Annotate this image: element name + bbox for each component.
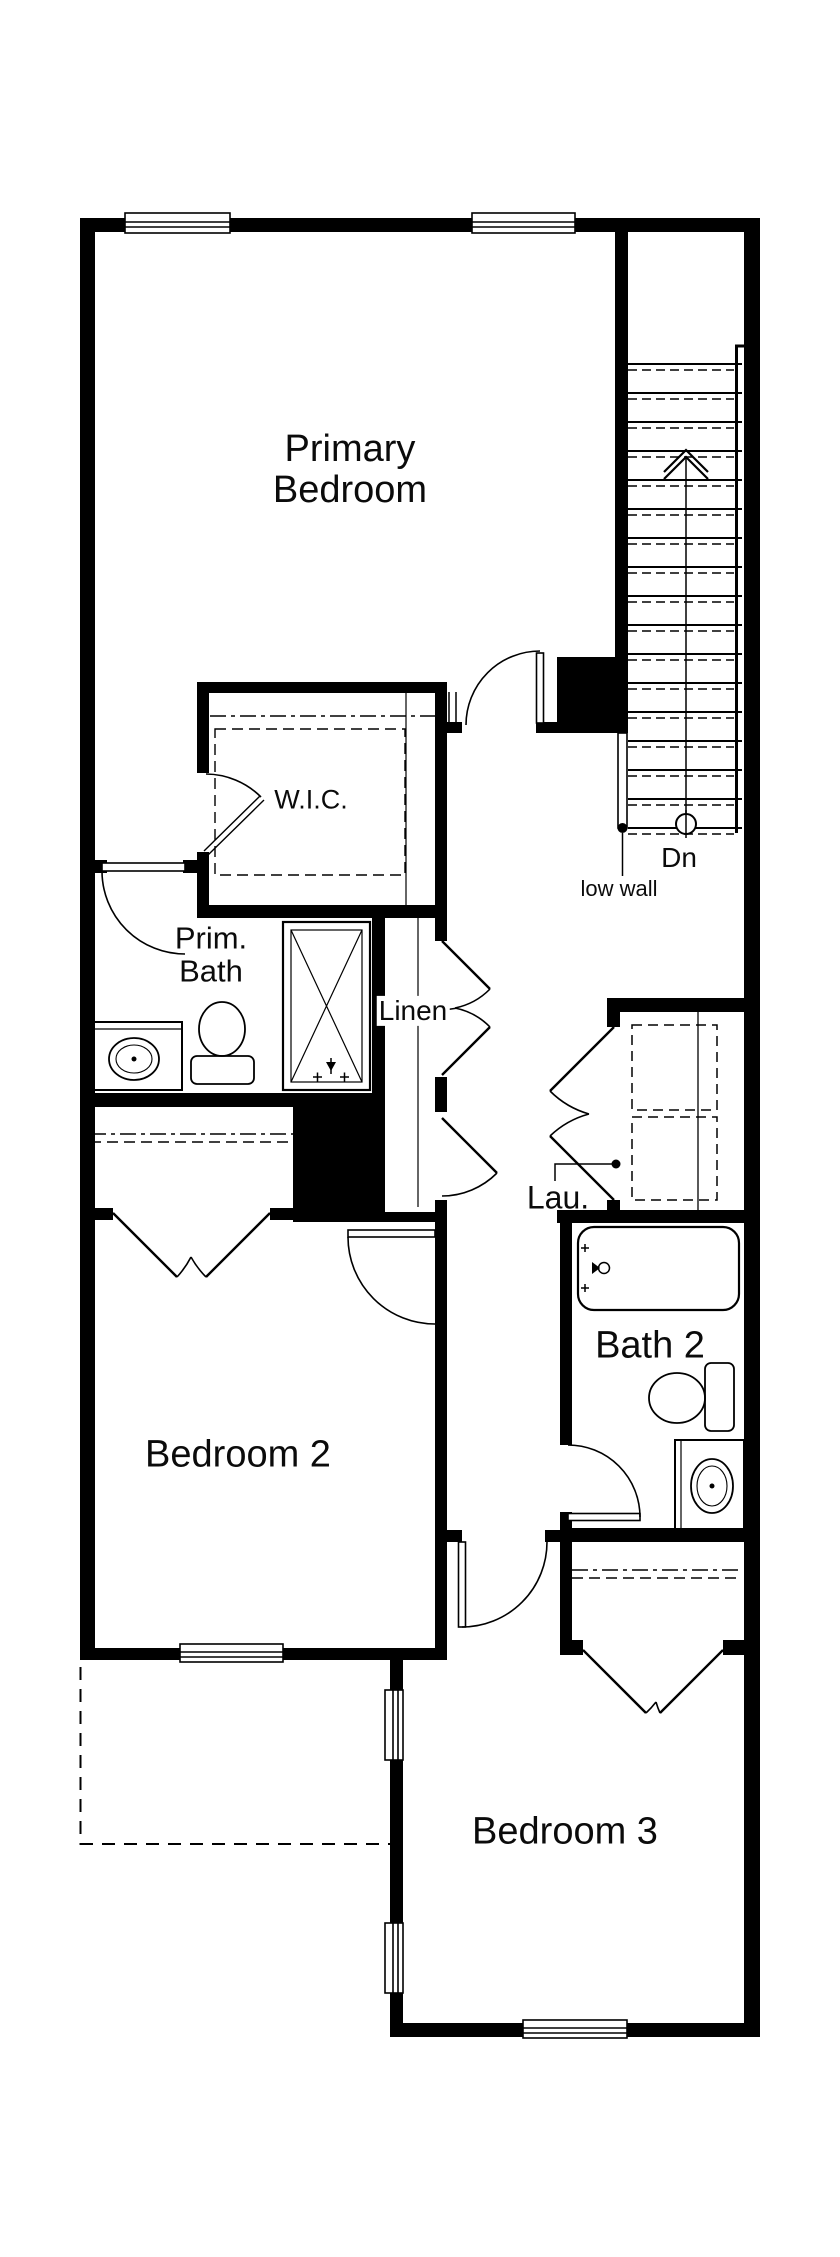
wall-bath2-left: [560, 1223, 572, 1445]
wall-hall-door-jamb-left: [447, 722, 462, 733]
wall-stair-mass: [557, 657, 628, 733]
toilet-prim-bath-icon: [191, 1002, 254, 1084]
wall-wic-right: [435, 682, 447, 941]
wall-closet3-left: [560, 1542, 572, 1655]
wall-laundry-jamb-top: [607, 998, 620, 1027]
floor-plan: Primary Bedroom W.I.C. Prim. Bath Linen …: [0, 0, 840, 2257]
door-laundry-bifold: [550, 1027, 614, 1200]
wall-bedroom3-top-left: [435, 1530, 462, 1542]
window-primary-1: [125, 213, 230, 233]
toilet-bath2-icon: [649, 1363, 734, 1431]
wall-bedroom2-door-head: [293, 1212, 438, 1222]
door-bedroom2: [348, 1230, 435, 1324]
wall-bedroom3-door-jamb: [545, 1530, 560, 1542]
label-low-wall: low wall: [580, 877, 657, 901]
wall-wic-left-upper: [197, 682, 209, 773]
wall-closet2-jamb-left: [92, 1208, 113, 1220]
wall-chase: [293, 1093, 385, 1212]
wall-closet3-front-left: [560, 1640, 583, 1655]
label-stair-dn: Dn: [661, 843, 697, 873]
wall-wic-top: [197, 682, 447, 693]
lau-leader-dot: [612, 1160, 621, 1169]
door-bath2: [568, 1445, 640, 1521]
shower-icon: [283, 922, 370, 1090]
label-bedroom2: Bedroom 2: [145, 1434, 331, 1475]
stair-tread-nosings-dashed: [628, 370, 734, 834]
door-wic: [204, 774, 264, 855]
floor-plan-drawing: [0, 0, 840, 2257]
stairs: [618, 345, 745, 876]
label-bedroom3: Bedroom 3: [472, 1811, 658, 1852]
vanity-prim-bath: [92, 1022, 182, 1090]
wall-stair-left: [615, 232, 628, 657]
tub-faucet-icon: [599, 1263, 610, 1274]
wall-left: [80, 218, 95, 1660]
label-wic: W.I.C.: [274, 785, 348, 814]
door-closet-bedroom2-double: [113, 1213, 270, 1277]
label-primary-bedroom: Primary Bedroom: [250, 429, 450, 511]
washer-dryer-icon: [632, 1025, 717, 1200]
vanity-bath2: [675, 1440, 744, 1530]
wall-closet2-jamb-right: [270, 1208, 293, 1220]
lau-leader-line: [555, 1164, 612, 1181]
stair-low-wall: [618, 733, 627, 828]
wall-closet3-front-right: [723, 1640, 760, 1655]
low-wall-leader-dot: [618, 823, 628, 833]
window-primary-2: [472, 213, 575, 233]
wall-bedroom2-right: [435, 1200, 447, 1660]
roof-outline-dashed: [80, 1667, 390, 1845]
label-bath2: Bath 2: [595, 1325, 705, 1366]
stair-treads: [628, 364, 742, 828]
wall-right: [744, 218, 760, 2037]
hall-partition-lines: [449, 692, 456, 722]
wall-linen-mid-jamb: [435, 1077, 447, 1112]
wall-laundry-top: [607, 998, 760, 1012]
wall-wic-bottom: [197, 905, 447, 918]
door-linen-lower: [442, 1118, 497, 1196]
doors: [102, 651, 723, 1713]
label-prim-bath: Prim. Bath: [155, 922, 267, 989]
window-bedroom3-left-lower: [385, 1923, 403, 1993]
bathtub-icon: [578, 1227, 739, 1310]
window-bedroom3-left-upper: [385, 1690, 403, 1760]
window-bedroom3-bottom: [523, 2020, 627, 2038]
door-primary-suite: [466, 651, 544, 725]
door-bedroom3: [459, 1542, 548, 1627]
door-closet-bedroom3-double: [583, 1650, 723, 1713]
label-linen: Linen: [377, 996, 450, 1026]
stair-stringer-wall: [735, 345, 744, 833]
wall-primbath-bottom: [80, 1093, 293, 1107]
label-laundry: Lau.: [527, 1181, 589, 1216]
window-bedroom2: [180, 1644, 283, 1662]
